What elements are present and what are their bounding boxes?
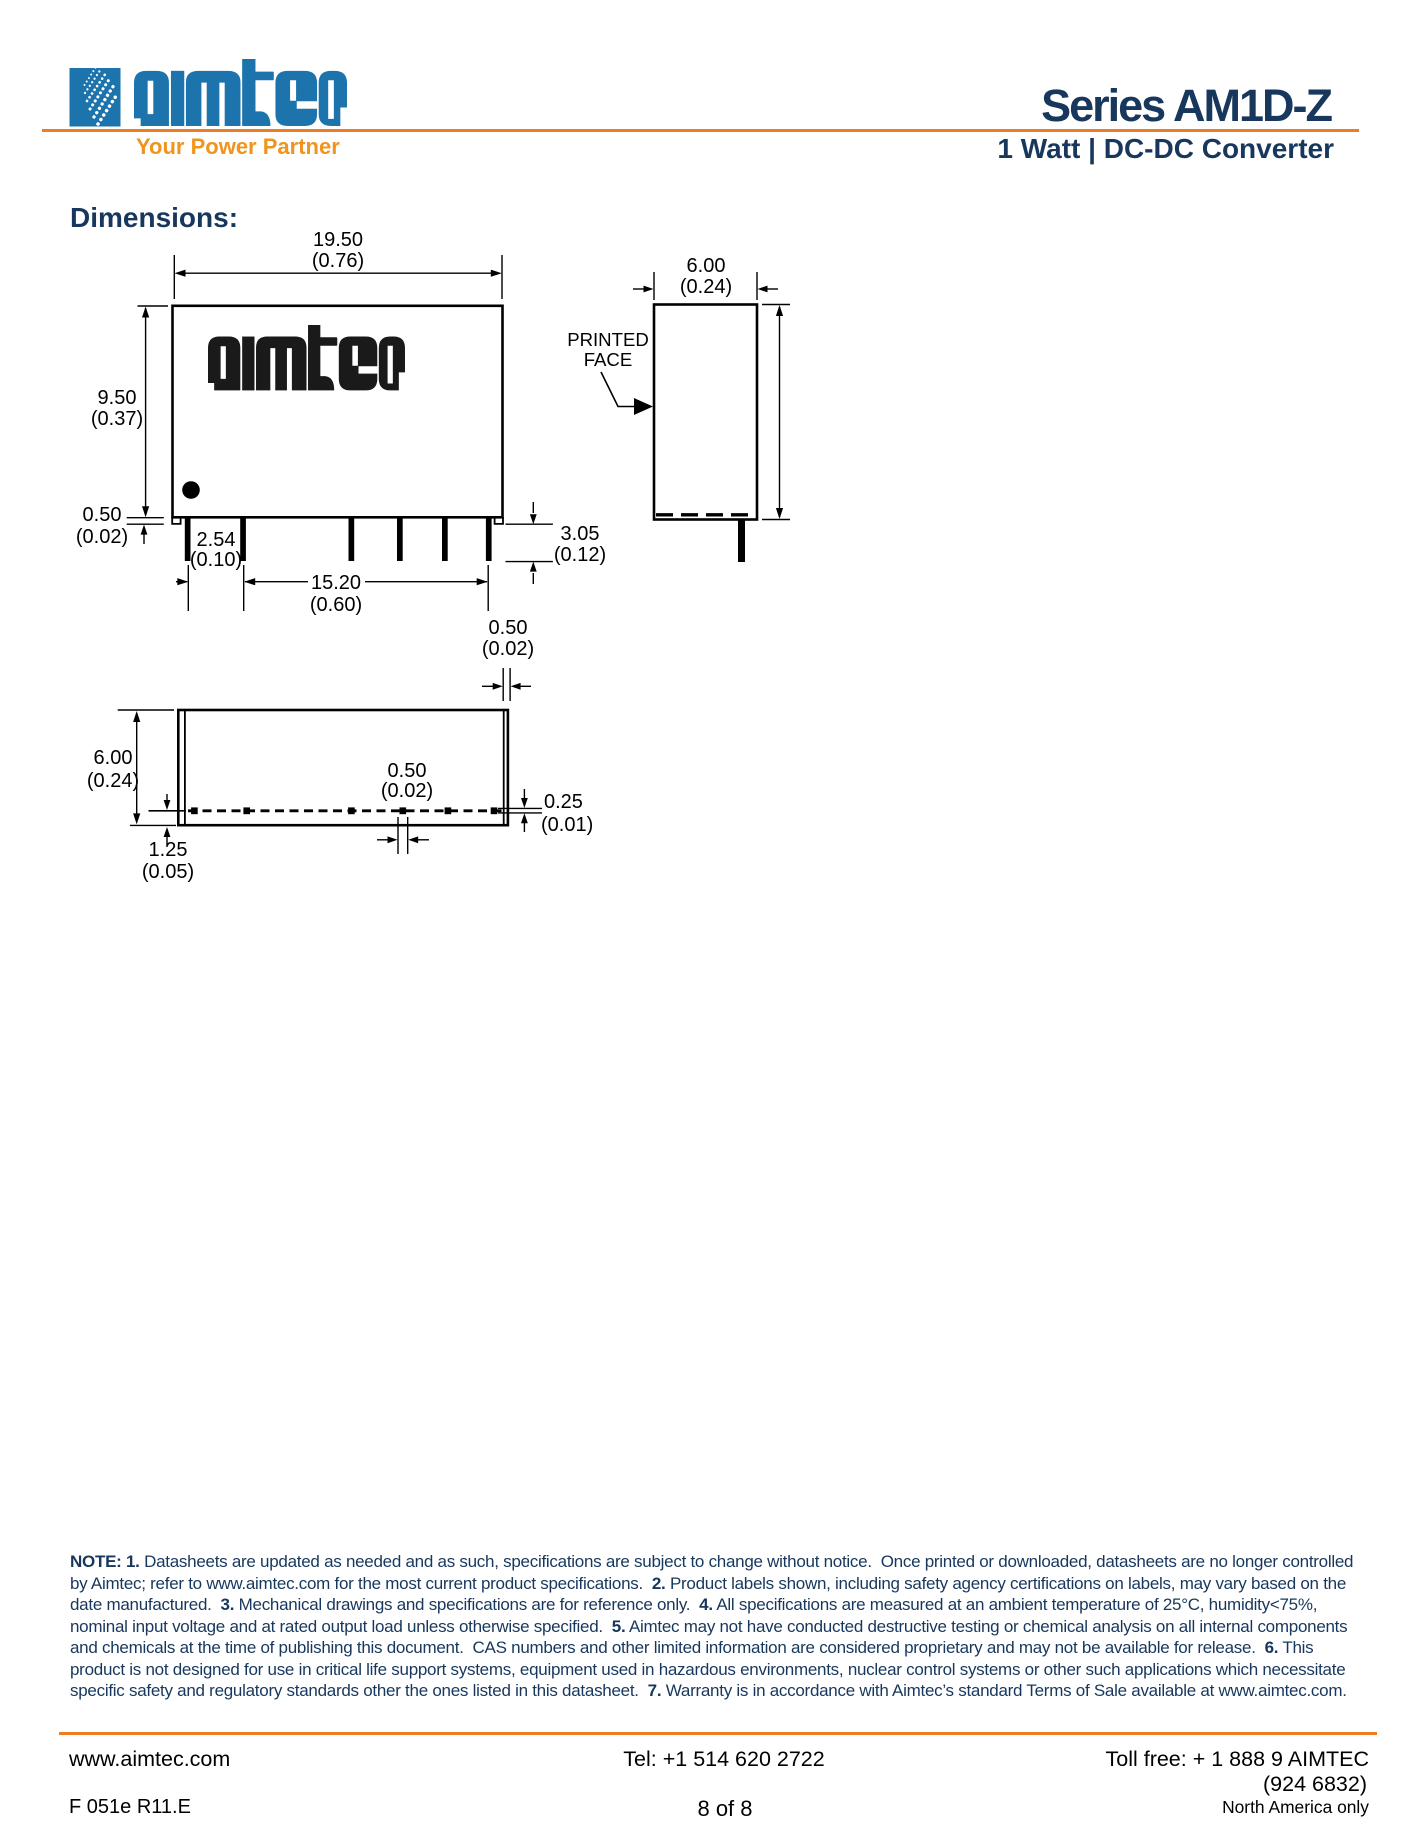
svg-text:(0.05): (0.05) <box>142 861 194 883</box>
svg-text:(0.02): (0.02) <box>381 780 433 802</box>
svg-text:2.54: 2.54 <box>197 529 236 551</box>
svg-text:FACE: FACE <box>584 349 633 370</box>
svg-text:0.50: 0.50 <box>83 504 122 526</box>
svg-text:0.50: 0.50 <box>388 760 427 782</box>
svg-text:(0.76): (0.76) <box>312 250 364 272</box>
svg-text:(0.02): (0.02) <box>76 526 128 548</box>
svg-text:(0.12): (0.12) <box>554 544 606 566</box>
svg-text:6.00: 6.00 <box>94 747 133 769</box>
svg-text:(0.01): (0.01) <box>541 814 593 836</box>
svg-text:6.00: 6.00 <box>687 255 726 277</box>
svg-text:1.25: 1.25 <box>149 839 188 861</box>
svg-text:19.50: 19.50 <box>313 229 363 251</box>
svg-text:(0.02): (0.02) <box>482 638 534 660</box>
svg-text:0.25: 0.25 <box>544 791 583 813</box>
svg-text:(0.60): (0.60) <box>310 594 362 616</box>
svg-text:(0.10): (0.10) <box>190 549 242 571</box>
svg-text:(0.24): (0.24) <box>87 770 139 792</box>
svg-text:(0.24): (0.24) <box>680 276 732 298</box>
svg-text:9.50: 9.50 <box>98 387 137 409</box>
svg-text:(0.37): (0.37) <box>91 408 143 430</box>
svg-text:15.20: 15.20 <box>311 572 361 594</box>
svg-text:0.50: 0.50 <box>489 617 528 639</box>
svg-text:PRINTED: PRINTED <box>567 329 649 350</box>
svg-text:3.05: 3.05 <box>561 523 600 545</box>
